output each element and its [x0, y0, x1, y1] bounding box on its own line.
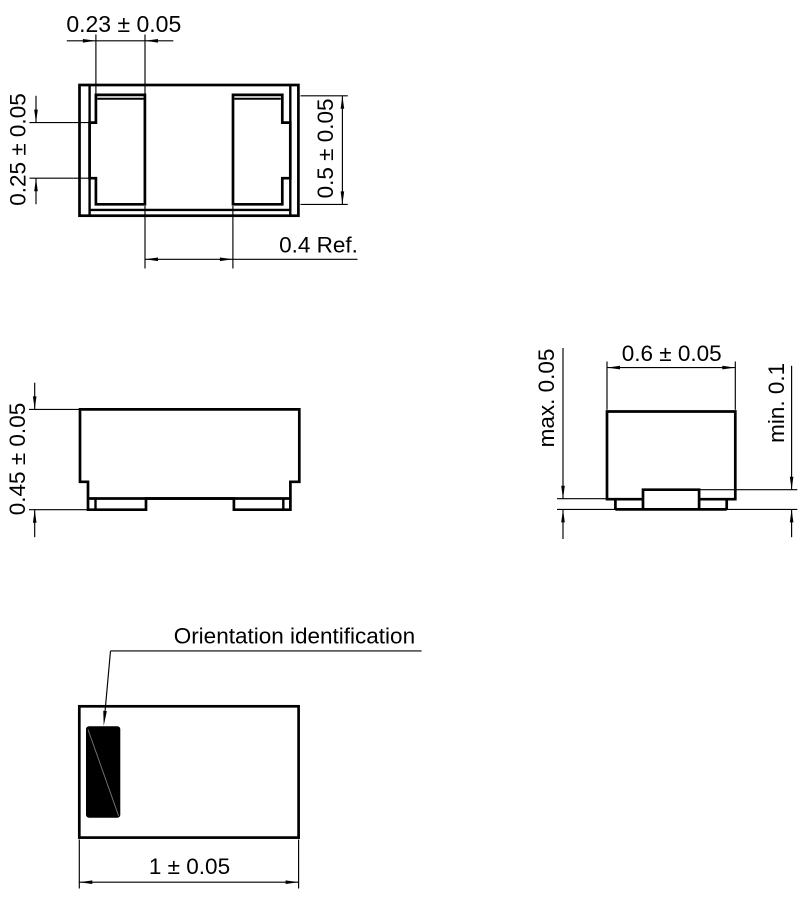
svg-text:0.5 ± 0.05: 0.5 ± 0.05 — [313, 98, 338, 198]
svg-text:0.4 Ref.: 0.4 Ref. — [279, 233, 358, 258]
svg-text:0.45 ± 0.05: 0.45 ± 0.05 — [5, 403, 30, 515]
svg-text:0.6 ± 0.05: 0.6 ± 0.05 — [622, 341, 722, 366]
svg-text:1 ± 0.05: 1 ± 0.05 — [149, 854, 230, 879]
svg-text:Orientation identification: Orientation identification — [174, 624, 415, 649]
svg-text:0.25 ± 0.05: 0.25 ± 0.05 — [6, 93, 31, 205]
svg-text:0.23 ± 0.05: 0.23 ± 0.05 — [66, 11, 181, 37]
svg-text:max. 0.05: max. 0.05 — [534, 349, 559, 448]
svg-text:min. 0.1: min. 0.1 — [764, 363, 789, 443]
